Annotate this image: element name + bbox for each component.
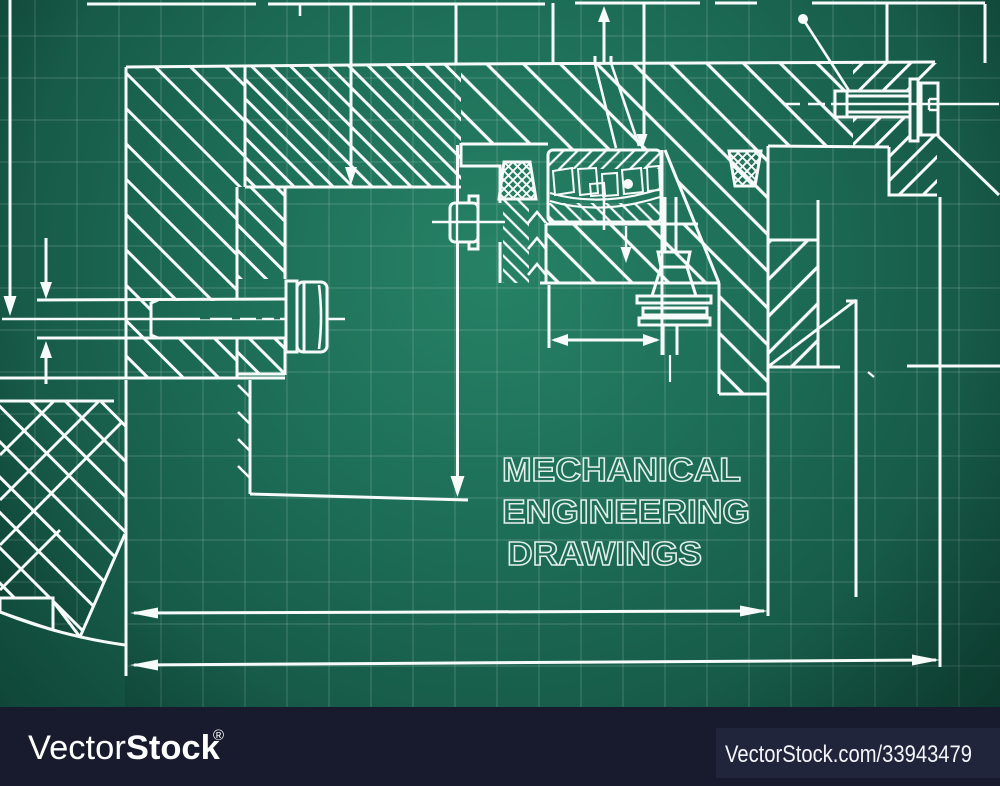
svg-text:®: ® <box>213 727 224 744</box>
svg-text:DRAWINGS: DRAWINGS <box>507 535 702 572</box>
svg-text:VectorStock.com/33943479: VectorStock.com/33943479 <box>725 741 972 768</box>
svg-text:VectorStock: VectorStock <box>28 729 221 767</box>
svg-text:MECHANICAL: MECHANICAL <box>502 451 741 488</box>
svg-text:ENGINEERING: ENGINEERING <box>502 493 750 530</box>
